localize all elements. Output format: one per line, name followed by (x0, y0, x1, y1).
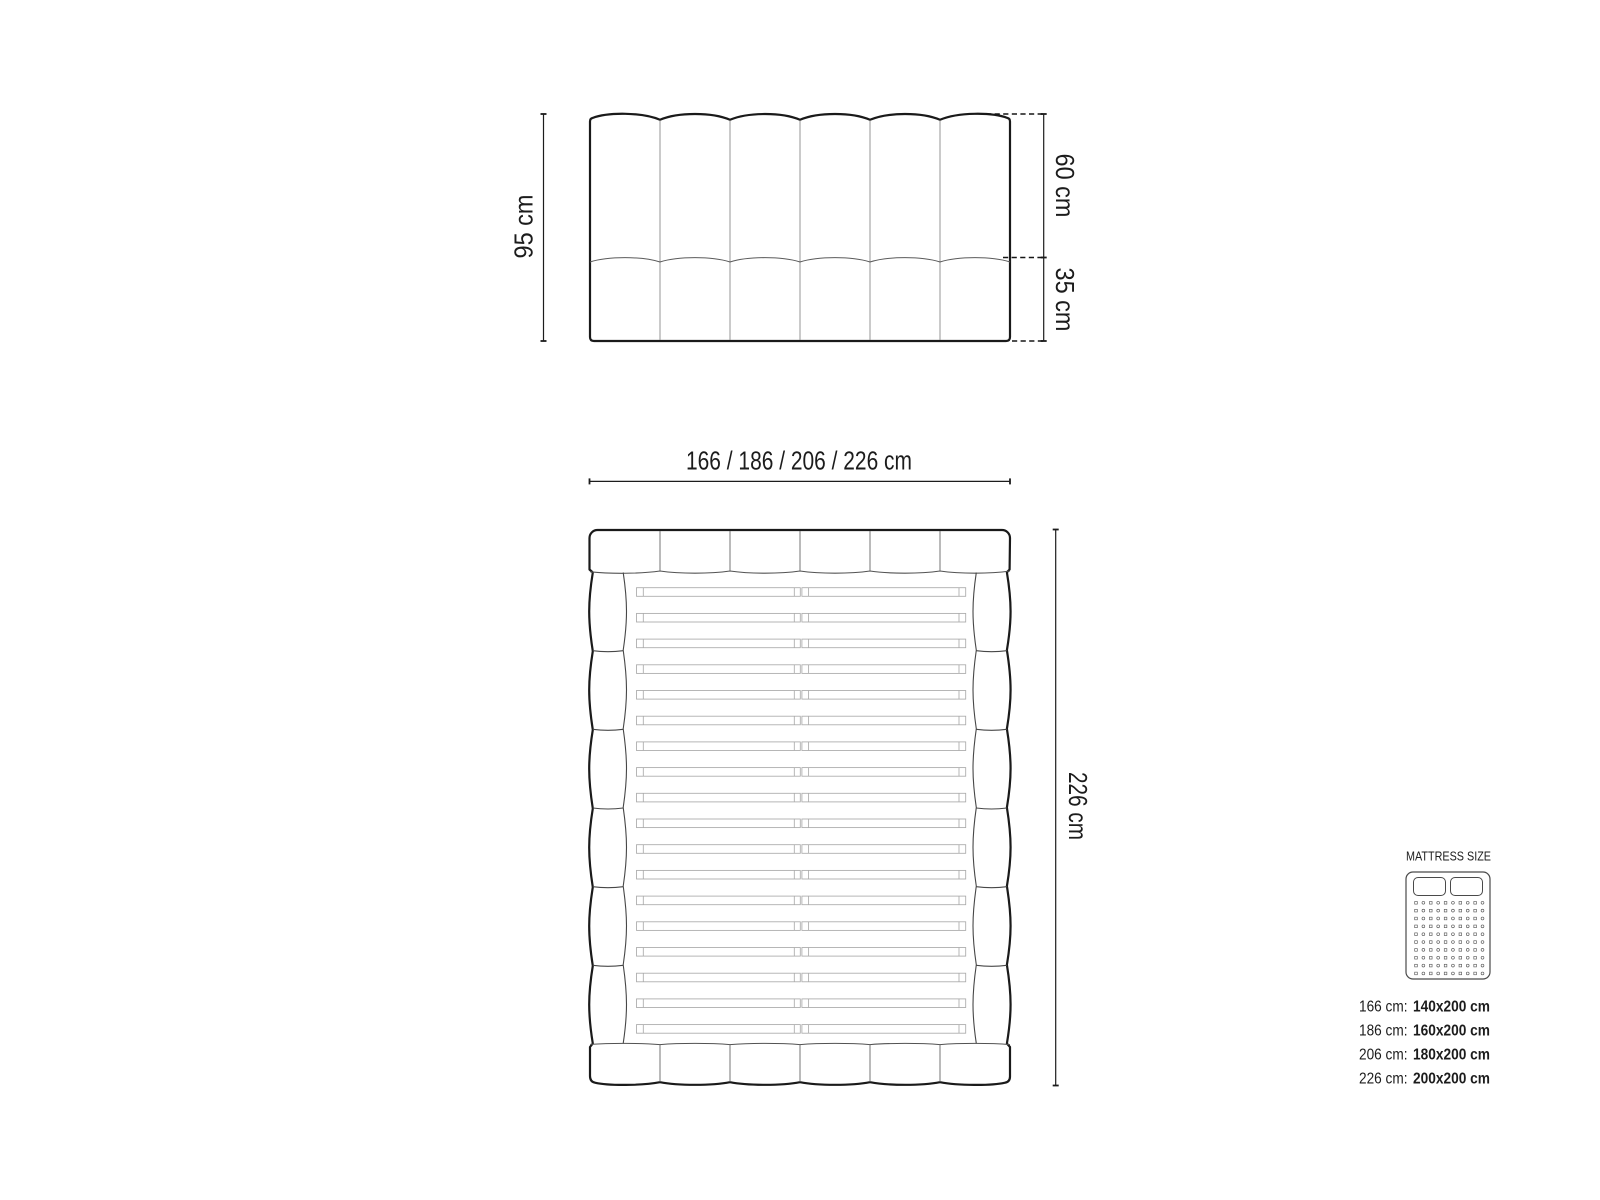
svg-text:140x200 cm: 140x200 cm (1413, 999, 1490, 1016)
svg-text:95 cm: 95 cm (509, 195, 539, 259)
svg-text:MATTRESS SIZE: MATTRESS SIZE (1406, 849, 1491, 864)
svg-text:206 cm:: 206 cm: (1359, 1047, 1408, 1064)
svg-text:166 / 186 / 206 / 226 cm: 166 / 186 / 206 / 226 cm (686, 448, 912, 476)
svg-text:60 cm: 60 cm (1050, 154, 1080, 218)
svg-text:35 cm: 35 cm (1050, 268, 1080, 332)
svg-text:180x200 cm: 180x200 cm (1413, 1047, 1490, 1064)
svg-text:226 cm: 226 cm (1063, 772, 1093, 840)
svg-text:200x200 cm: 200x200 cm (1413, 1071, 1490, 1088)
svg-text:166 cm:: 166 cm: (1359, 999, 1408, 1016)
svg-text:160x200 cm: 160x200 cm (1413, 1023, 1490, 1040)
svg-text:226 cm:: 226 cm: (1359, 1071, 1408, 1088)
svg-text:186 cm:: 186 cm: (1359, 1023, 1408, 1040)
